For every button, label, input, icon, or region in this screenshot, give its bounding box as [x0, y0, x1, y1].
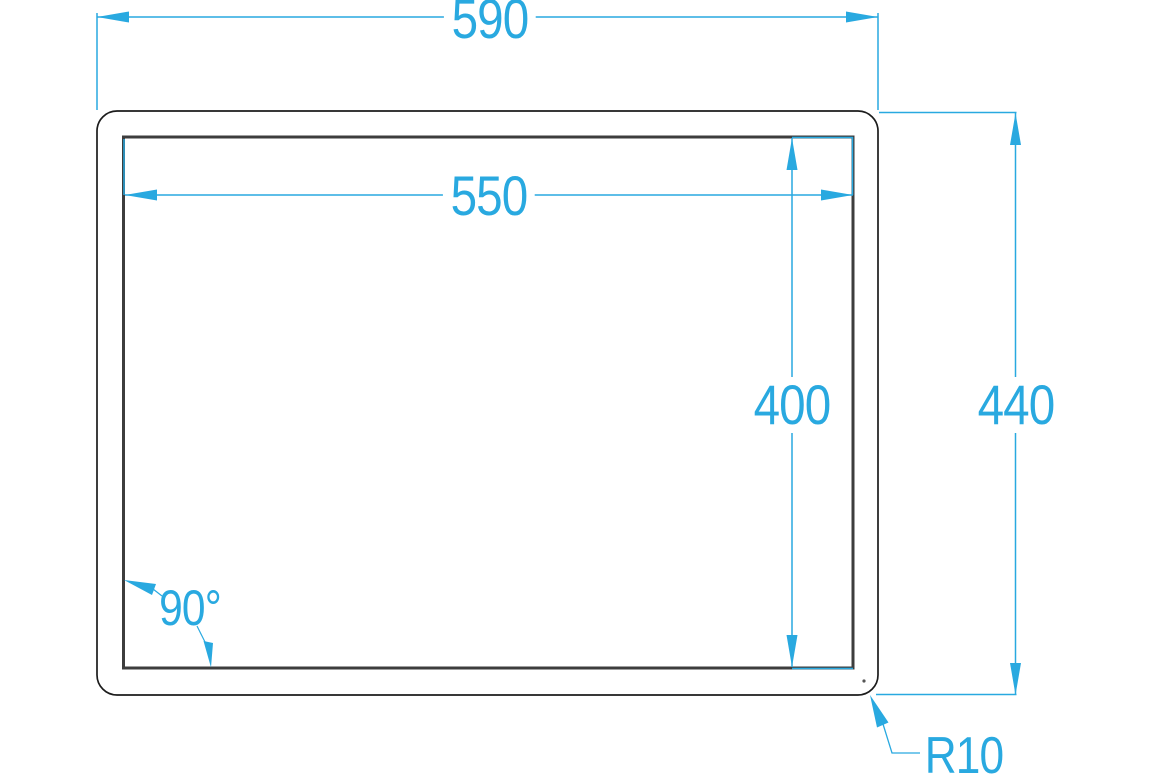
dim-inner-width-label: 550: [443, 168, 535, 224]
dim-inner-height-label: 400: [746, 377, 838, 433]
technical-drawing-canvas: 590 550 400 440 90° R10: [0, 0, 1150, 775]
dim-outer-height-arrowhead-bottom: [1010, 663, 1021, 695]
radius-annotation-label: R10: [925, 730, 1004, 775]
dim-outer-height-label: 440: [970, 377, 1062, 433]
dim-outer-height-arrowhead-top: [1010, 113, 1021, 145]
dim-outer-width-arrowhead-left: [97, 12, 129, 23]
dim-outer-width-label: 590: [444, 0, 536, 47]
dim-outer-width-arrowhead-right: [846, 12, 878, 23]
radius-annotation-leader: [883, 724, 920, 753]
corner-arc-center-dot: [862, 679, 865, 682]
angle-annotation-label: 90°: [159, 583, 221, 633]
radius-annotation-arrowhead: [870, 695, 889, 728]
